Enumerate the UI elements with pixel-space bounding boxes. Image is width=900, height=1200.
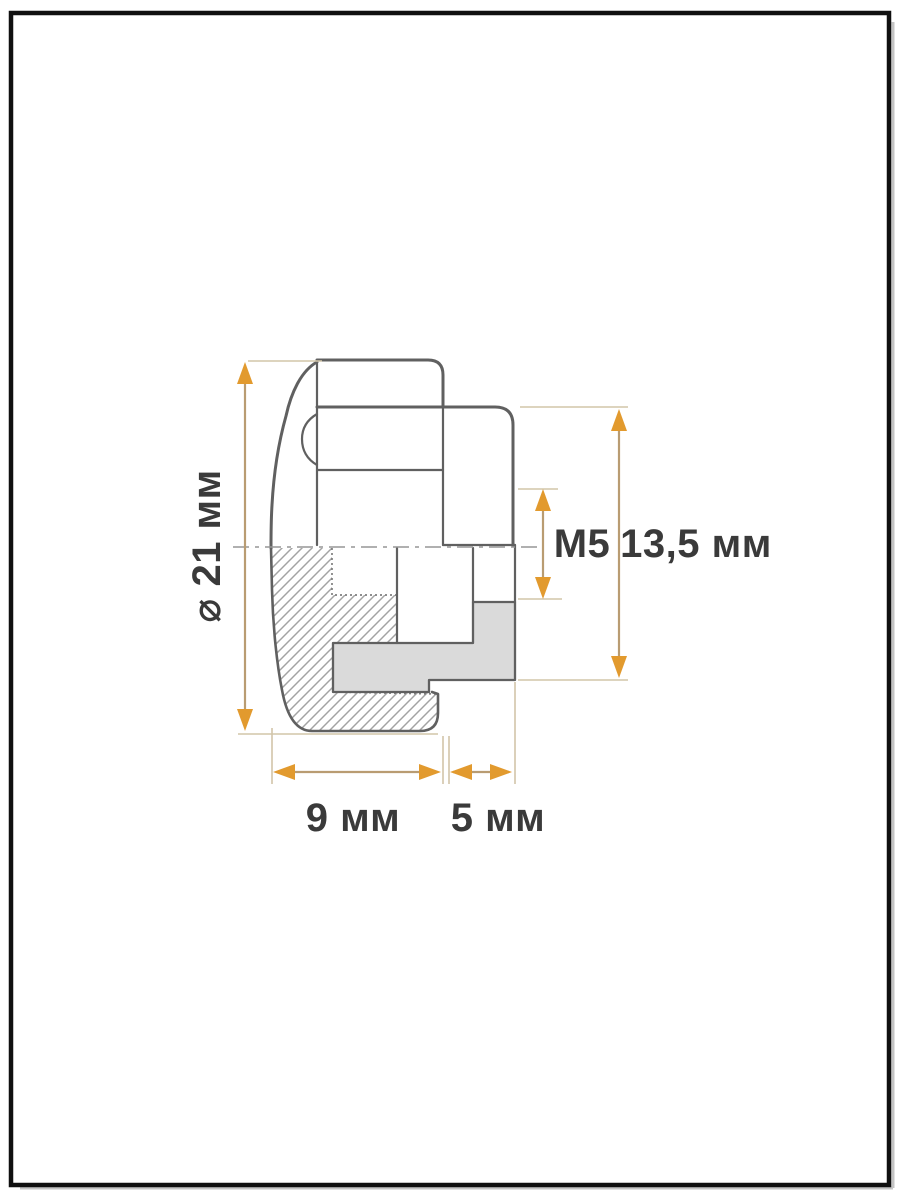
- body-width-label: 9 мм: [306, 796, 401, 840]
- arrowhead-up: [611, 409, 627, 431]
- photo-frame-border: [11, 13, 889, 1185]
- arrowhead-down: [611, 656, 627, 678]
- frame-shadow: [20, 22, 893, 1188]
- arrowhead-up: [535, 489, 551, 511]
- knob-cross-section: [233, 360, 540, 731]
- dimension-boss-width: 5 мм: [449, 736, 545, 840]
- dimension-thread: M5: [518, 489, 610, 599]
- dimension-height: 13,5 мм: [515, 407, 772, 784]
- arrowhead-left: [450, 764, 472, 780]
- technical-drawing-canvas: ⌀ 21 мм M5 13,5 мм 9 м: [0, 0, 900, 1200]
- counterbore-notch-edge: [332, 548, 397, 595]
- arrowhead-down: [237, 709, 253, 731]
- arrowhead-up: [237, 362, 253, 384]
- knob-top-cap-outline: [317, 360, 443, 407]
- arrowhead-right: [490, 764, 512, 780]
- arrowhead-right: [419, 764, 441, 780]
- diameter-label: ⌀ 21 мм: [185, 469, 229, 622]
- arrowhead-down: [535, 577, 551, 599]
- collar-top-outline: [317, 407, 513, 545]
- boss-width-label: 5 мм: [451, 796, 546, 840]
- drawing-page: ⌀ 21 мм M5 13,5 мм 9 м: [0, 0, 900, 1200]
- collar-left-cap-arc: [302, 414, 317, 465]
- height-label: 13,5 мм: [620, 522, 772, 566]
- knob-outer-left-curve: [271, 362, 317, 548]
- arrowhead-left: [273, 764, 295, 780]
- thread-label: M5: [554, 522, 611, 566]
- knob-body-hatched-section: [271, 548, 438, 731]
- dimension-body-width: 9 мм: [272, 728, 443, 840]
